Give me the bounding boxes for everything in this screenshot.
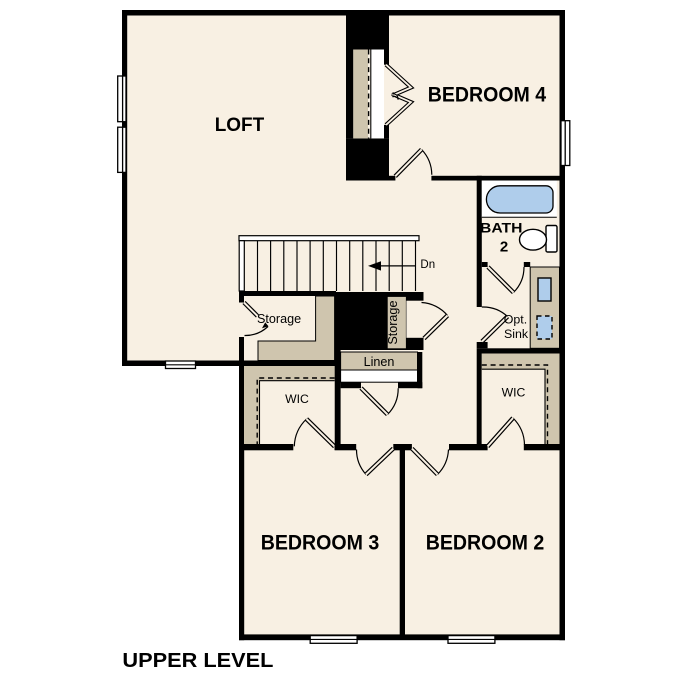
svg-text:UPPER LEVEL: UPPER LEVEL [122,649,273,672]
svg-text:WIC: WIC [502,386,526,400]
svg-text:BEDROOM 3: BEDROOM 3 [261,532,380,555]
svg-text:Opt.: Opt. [504,312,527,326]
svg-text:BEDROOM 2: BEDROOM 2 [426,532,545,555]
svg-text:BEDROOM 4: BEDROOM 4 [428,84,547,107]
svg-text:LOFT: LOFT [215,115,265,136]
svg-text:Storage: Storage [386,301,400,345]
svg-text:WIC: WIC [285,392,309,406]
svg-text:Sink: Sink [504,327,529,341]
svg-text:Storage: Storage [257,312,301,326]
svg-text:Dn: Dn [420,259,435,271]
svg-text:Linen: Linen [364,355,395,369]
svg-text:2: 2 [500,238,508,255]
svg-text:BATH: BATH [480,219,522,235]
